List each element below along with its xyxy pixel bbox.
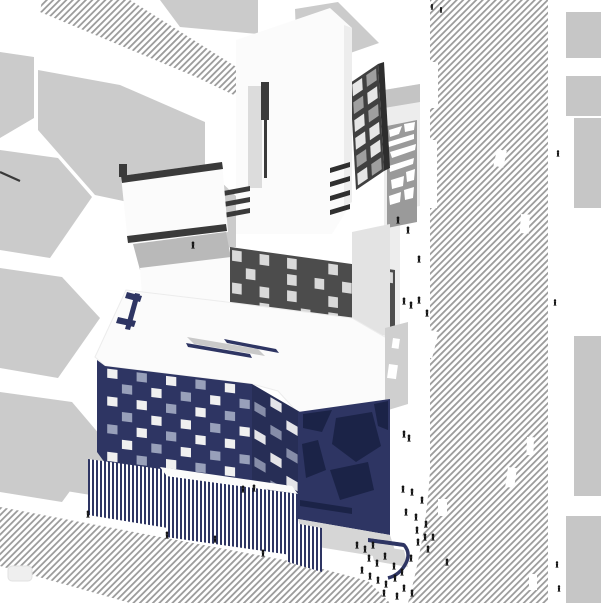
facade-window — [195, 407, 205, 417]
facade-window — [151, 416, 161, 426]
facade-window — [328, 296, 338, 308]
facade-window — [107, 369, 117, 379]
facade-window — [240, 454, 250, 464]
facade-window — [195, 379, 205, 389]
road-marking — [526, 437, 534, 455]
road-marking — [529, 574, 537, 590]
east-mural-wall — [298, 399, 390, 535]
recessed-panel — [248, 86, 262, 188]
facade-window — [225, 383, 235, 393]
facade-window — [210, 423, 220, 433]
block-shape — [574, 118, 601, 208]
facade-window — [107, 396, 117, 406]
facade-window — [181, 447, 191, 457]
block-shape — [566, 76, 601, 116]
facade-window — [166, 431, 176, 441]
block-shape — [566, 516, 601, 603]
white-tower — [218, 8, 352, 234]
facade-window — [195, 463, 205, 473]
block-shape — [574, 336, 601, 496]
facade-window — [137, 400, 147, 410]
facade-window — [166, 404, 176, 414]
facade-window — [328, 263, 338, 275]
facade-window — [122, 412, 132, 422]
sign-bar — [261, 82, 269, 120]
facade-window — [260, 286, 270, 298]
road-marking — [520, 214, 530, 234]
facade-window — [137, 428, 147, 438]
architectural-rendering — [0, 0, 601, 603]
facade-window — [166, 459, 176, 469]
facade-sw — [105, 366, 252, 481]
facade-window — [210, 451, 220, 461]
facade-window — [151, 388, 161, 398]
west-face — [97, 360, 105, 463]
facade-window — [342, 282, 352, 294]
sign-line — [264, 120, 267, 178]
facade-window — [137, 372, 147, 382]
facade-window — [195, 435, 205, 445]
facade-window — [315, 278, 325, 290]
road-marking — [438, 499, 447, 516]
street-notch — [429, 62, 438, 108]
facade-window — [166, 376, 176, 386]
dark-tower — [350, 62, 390, 190]
facade-window — [107, 452, 117, 462]
car — [8, 566, 32, 581]
facade-window — [240, 426, 250, 436]
site-plan-svg — [0, 0, 601, 603]
facade-window — [122, 384, 132, 394]
block-shape — [566, 12, 601, 58]
rear-gray-wall — [385, 322, 408, 411]
facade-window — [260, 254, 270, 266]
slab-core — [119, 164, 127, 177]
facade-window — [225, 438, 235, 448]
facade-window — [107, 424, 117, 434]
facade-window — [232, 250, 242, 262]
facade-window — [225, 466, 235, 476]
facade-window — [287, 258, 297, 270]
facade-window — [137, 455, 147, 465]
facade-window — [225, 411, 235, 421]
facade-window — [240, 399, 250, 409]
street-notch — [420, 140, 437, 208]
facade-window — [287, 274, 297, 286]
facade-window — [181, 419, 191, 429]
facade-window — [181, 391, 191, 401]
window — [392, 338, 400, 349]
facade-window — [151, 443, 161, 453]
facade-window — [287, 290, 297, 302]
facade-window — [246, 268, 256, 280]
facade-window — [122, 440, 132, 450]
facade-window — [232, 283, 242, 295]
facade-window — [210, 395, 220, 405]
